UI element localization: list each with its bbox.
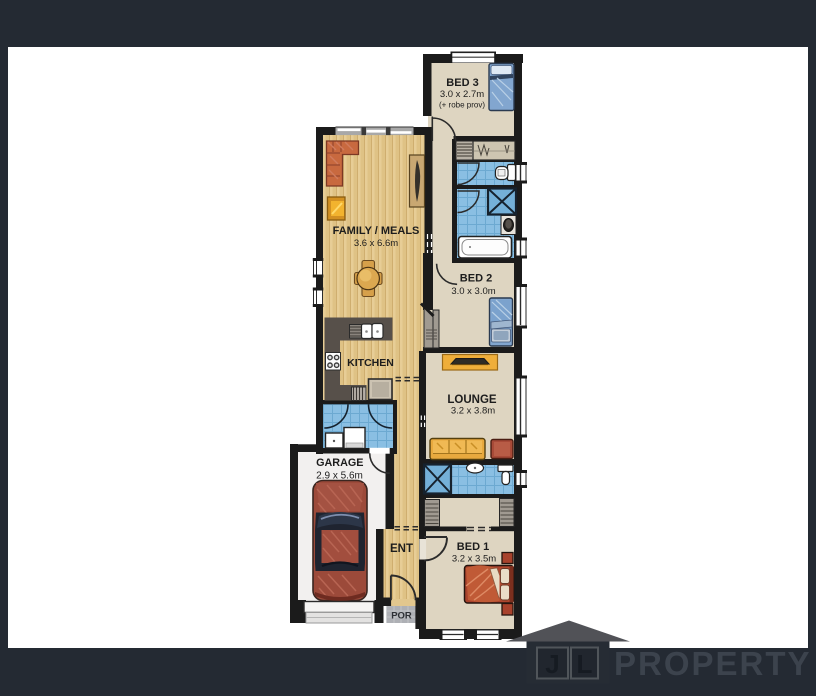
svg-text:ENT: ENT [390,543,413,555]
svg-text:LOUNGE: LOUNGE [447,394,497,406]
svg-text:3.6 x 6.6m: 3.6 x 6.6m [354,238,398,249]
svg-text:L: L [577,649,593,679]
svg-text:3.2 x 3.5m: 3.2 x 3.5m [452,554,496,565]
svg-text:3.0 x 3.0m: 3.0 x 3.0m [451,286,495,297]
svg-text:BED 2: BED 2 [460,273,492,285]
svg-text:BED 1: BED 1 [457,541,489,553]
svg-text:POR: POR [391,610,412,621]
svg-text:(+ robe prov): (+ robe prov) [439,101,485,110]
svg-text:KITCHEN: KITCHEN [347,357,394,369]
svg-text:3.0 x 2.7m: 3.0 x 2.7m [440,89,484,100]
svg-text:PROPERTY: PROPERTY [614,645,812,682]
svg-text:2.9 x 5.6m: 2.9 x 5.6m [316,471,363,482]
svg-text:GARAGE: GARAGE [316,457,363,469]
svg-text:J: J [545,649,559,679]
svg-text:BED 3: BED 3 [446,77,478,89]
svg-text:FAMILY / MEALS: FAMILY / MEALS [333,225,420,237]
svg-text:3.2 x 3.8m: 3.2 x 3.8m [451,406,495,417]
